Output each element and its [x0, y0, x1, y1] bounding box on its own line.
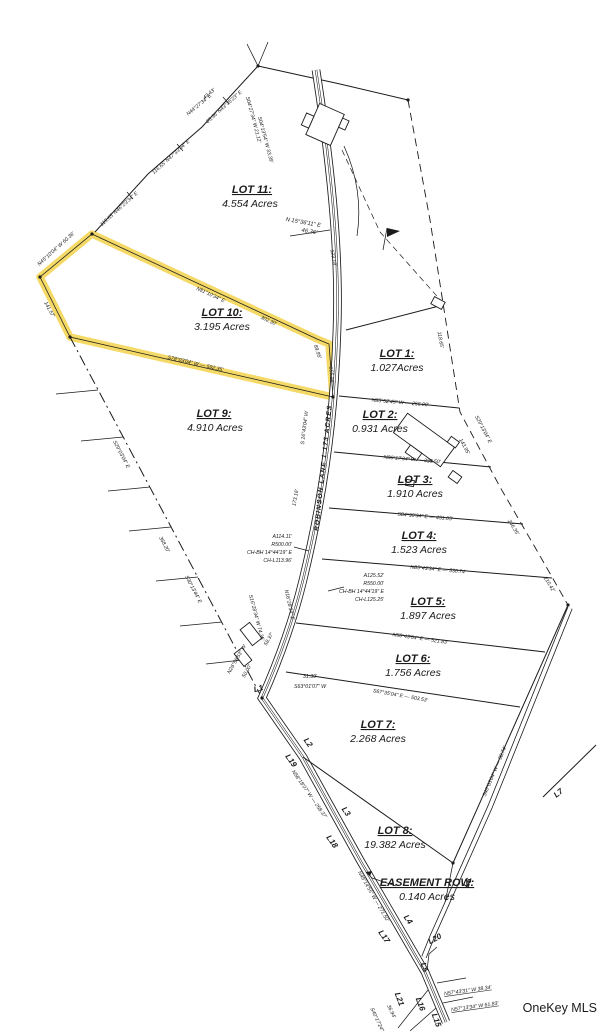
east-dashed-boundary-inner	[342, 150, 443, 303]
apex-stub-line2	[247, 44, 258, 66]
line-label-l3: L3	[340, 805, 353, 818]
lot-10-highlight	[40, 234, 333, 397]
curve-note-line: R500.00'	[271, 542, 293, 548]
monument-dot	[90, 232, 93, 235]
lot-8-label: LOT 8:	[378, 825, 413, 837]
west-dashdot-boundary	[70, 337, 262, 698]
line-label-l20: L20	[427, 931, 444, 946]
l7-segment-line	[543, 745, 596, 797]
bearing-label: 143.95'	[457, 438, 471, 457]
bearing-label: 115.65' N46°23'34" E	[99, 190, 140, 227]
lot-4-label: LOT 4:	[402, 530, 437, 542]
lot-6-label: LOT 6:	[396, 653, 431, 665]
road-name-label: ROBINSON LANE 1.173 ACRES	[313, 404, 333, 531]
shed-outline	[448, 471, 462, 484]
boundary-tick	[108, 487, 150, 491]
monument-dot	[260, 696, 263, 699]
line-label-l2: L2	[302, 736, 315, 749]
curve-note-line: A125.52'	[363, 573, 385, 579]
easement-row-label: EASEMENT ROW:	[380, 877, 475, 889]
line-label-l4: L4	[402, 913, 415, 926]
boundary-tick	[180, 622, 222, 626]
lot-1-label: LOT 1:	[380, 348, 415, 360]
bearing-scribble: S63°01'07" W	[294, 684, 327, 690]
bearing-scribble: 368.20'	[157, 536, 171, 555]
plat-map-canvas: LOT 11: 4.554 Acres LOT 10: 3.195 Acres …	[0, 0, 600, 1031]
curve-note-line: CH-L113.96'	[263, 558, 293, 564]
line-label-l18: L18	[324, 833, 340, 850]
monument-dot	[451, 861, 454, 864]
monument-dot	[68, 335, 71, 338]
lot1-north-line	[346, 305, 443, 330]
bearing-distance: 46.36'	[301, 228, 318, 237]
lot-2-acres: 0.931 Acres	[352, 423, 408, 435]
bearing-label: N57°13'34" W 61.83'	[451, 1001, 500, 1014]
bearing-label: N57°43'31" W 38.34'	[444, 985, 493, 998]
bearing-label: N85°43'34" E — 530.74'	[410, 565, 467, 576]
building-outline	[306, 103, 344, 145]
curve-note-line: A114.11'	[271, 534, 293, 540]
bearing-scribble: 173.16'	[292, 488, 301, 507]
lot-6-acres: 1.756 Acres	[385, 667, 441, 679]
bearing-scribble: S40°17'24" W	[368, 1007, 387, 1031]
lot-9-acres: 4.910 Acres	[187, 422, 243, 434]
lot-10-boundary	[40, 234, 333, 397]
bearing-label: 89.95'	[312, 344, 322, 360]
bearing-label: S67°35'04" E — 503.53'	[372, 688, 429, 704]
house-lot2	[388, 408, 459, 475]
bearing-label: S30°13'44" E	[183, 575, 203, 605]
easement-row-acres: 0.140 Acres	[399, 891, 455, 903]
monument-dot	[256, 64, 259, 67]
bearing-label: 116.65' N47°33'04" E	[151, 138, 192, 175]
lot-3-label: LOT 3:	[398, 474, 433, 486]
monument-dot	[331, 395, 334, 398]
bearing-label: S29°13'04" E	[473, 415, 493, 445]
bottom-tie-2	[443, 997, 473, 1003]
north-boundary-line	[258, 66, 408, 100]
bearing-label: N85°52'45" W — 256.00'	[371, 398, 430, 409]
bearing-label: 118.65'	[436, 331, 445, 349]
flag-pole	[383, 228, 387, 250]
bearing-label: S29°03'04" E	[111, 440, 131, 470]
lot-11-acres: 4.554 Acres	[222, 198, 278, 210]
lot-7-label: LOT 7:	[361, 719, 396, 731]
lot-2-label: LOT 2:	[363, 409, 398, 421]
curve-note-line: CH-L125.25'	[355, 597, 385, 603]
building-cluster-top	[298, 100, 350, 148]
flag-icon	[387, 228, 400, 237]
lot-4-acres: 1.523 Acres	[391, 544, 447, 556]
survey-plat-svg: LOT 11: 4.554 Acres LOT 10: 3.195 Acres …	[0, 0, 600, 1031]
lot-5-label: LOT 5:	[411, 596, 446, 608]
line-label-l17: L17	[376, 928, 392, 945]
curve-note-line: CH-BH 14°44'19" E	[339, 589, 385, 595]
apex-stub-line	[258, 42, 268, 66]
curve-note-line: CH-BH 14°44'19" E	[247, 550, 293, 556]
bearing-scribble: N44°27'34" E	[186, 93, 214, 118]
monument-dot	[406, 98, 409, 101]
bearing-label: 246.35'	[505, 518, 520, 537]
lot-5-acres: 1.897 Acres	[400, 610, 456, 622]
bearing-scribble: S 16°43'04" W	[300, 410, 310, 445]
bearing-scribble: 31.39'	[303, 674, 318, 680]
bottom-tie-1	[437, 978, 466, 983]
lot-10-acres: 3.195 Acres	[194, 321, 250, 333]
line-label-l21: L21	[393, 991, 406, 1008]
line-label-l7: L7	[552, 786, 565, 799]
lot-7-acres: 2.268 Acres	[349, 733, 406, 745]
onekey-mls-watermark: OneKey MLS	[523, 1001, 597, 1015]
lot-10-label: LOT 10:	[202, 307, 243, 319]
monument-dot	[38, 275, 41, 278]
bearing-label: 210.42'	[541, 575, 556, 594]
lot-1-acres: 1.027Acres	[370, 362, 424, 374]
boundary-tick	[56, 390, 98, 394]
bearing-label: N50°43'04" E — 521.83'	[392, 632, 449, 646]
bearing-label: S84°30'34" E — 451.05'	[397, 512, 454, 523]
lot-8-acres: 19.382 Acres	[364, 839, 426, 851]
lot-3-acres: 1.910 Acres	[387, 488, 443, 500]
lot-11-label: LOT 11:	[232, 184, 272, 196]
bearing-scribble: 36.94'	[385, 1004, 397, 1020]
boundary-tick	[129, 527, 171, 531]
lot-9-label: LOT 9:	[197, 408, 232, 420]
monument-dot	[566, 603, 569, 606]
shed-lot3	[448, 471, 462, 484]
curve-note-line: R550.00'	[363, 581, 385, 587]
line-label-l16: L16	[414, 996, 427, 1013]
